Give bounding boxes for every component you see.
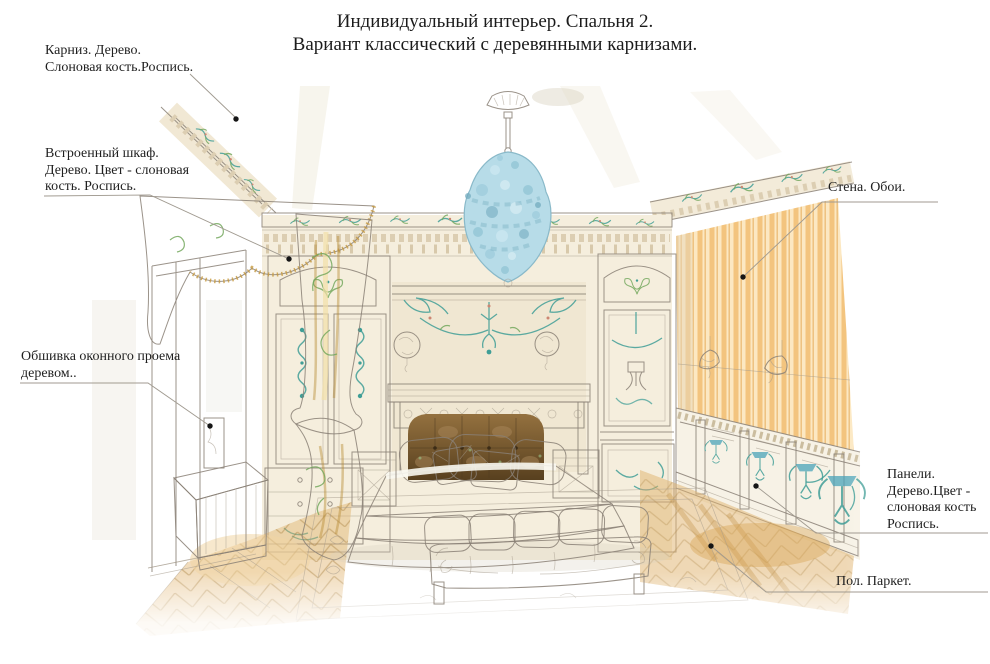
label-wall: Стена. Обои. (828, 180, 905, 197)
label-panels: Панели. Дерево.Цвет - слоновая кость Рос… (887, 467, 976, 533)
dot-panels (753, 483, 758, 488)
ceiling-shadow-smudge (532, 88, 584, 106)
chandelier (464, 92, 551, 288)
leader-cornice (190, 74, 236, 118)
label-floor: Пол. Паркет. (836, 574, 911, 591)
label-window-trim: Обшивка оконного проема деревом.. (21, 349, 180, 382)
title-line-1: Индивидуальный интерьер. Спальня 2. (0, 10, 990, 33)
dot-wardrobe (286, 256, 291, 261)
dot-floor (708, 543, 713, 548)
label-cornice: Карниз. Дерево. Слоновая кость.Роспись. (45, 43, 193, 76)
interior-illustration (0, 0, 990, 664)
presentation-board: Индивидуальный интерьер. Спальня 2. Вари… (0, 0, 990, 664)
dot-cornice (233, 116, 238, 121)
label-wardrobe: Встроенный шкаф. Дерево. Цвет - слоновая… (45, 146, 189, 196)
window-frame (148, 250, 268, 576)
floor-fade (30, 572, 970, 664)
dot-window-trim (207, 423, 212, 428)
dot-wall (740, 274, 745, 279)
